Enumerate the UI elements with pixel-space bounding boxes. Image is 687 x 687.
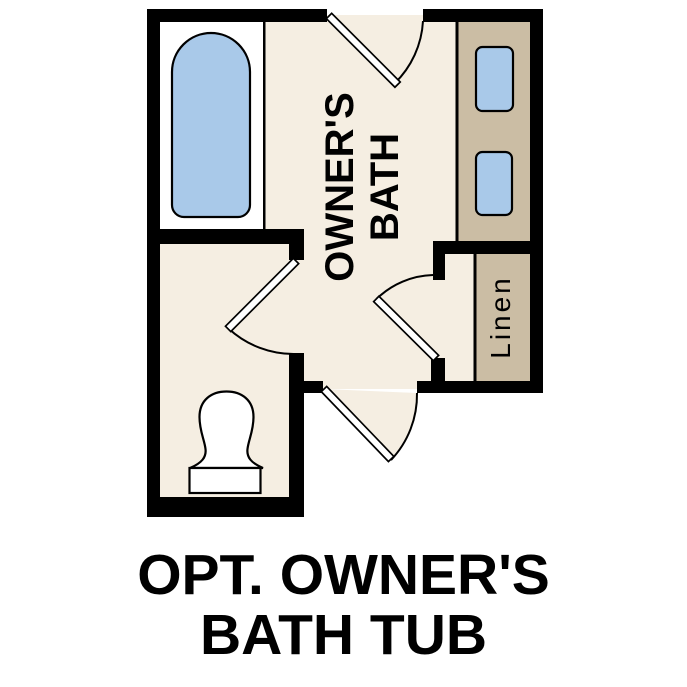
sink-2-icon <box>476 152 512 215</box>
owners-bath-label-line1: OWNER'S <box>318 92 363 282</box>
owners-bath-label: OWNER'S BATH <box>318 92 408 282</box>
plan-caption-line2: BATH TUB <box>0 605 687 665</box>
owners-bath-label-line2: BATH <box>363 92 408 282</box>
wall-alcove-bottom <box>147 229 304 244</box>
wall-top-right <box>423 9 543 22</box>
wall-toilet-bottom <box>147 497 304 517</box>
toilet-tank <box>190 468 261 493</box>
wall-vanity-bottom <box>433 241 543 254</box>
wall-left <box>147 9 160 517</box>
wall-right <box>530 9 543 393</box>
sink-1-icon <box>476 47 513 111</box>
vanity-edge-line <box>456 21 459 242</box>
wall-toilet-right <box>289 353 304 517</box>
linen-label: Linen <box>485 275 517 359</box>
wall-toilet-door-top-jamb <box>289 243 304 260</box>
wall-bottom-door-left-jamb <box>304 381 323 393</box>
linen-edge-line <box>474 253 477 381</box>
wall-linen-bottom <box>417 381 543 393</box>
plan-caption-line1: OPT. OWNER'S <box>0 545 687 605</box>
tub-alcove-edge-line <box>263 21 266 229</box>
floor-plan-figure: OWNER'S BATH Linen OPT. OWNER'S BATH TUB <box>0 0 687 687</box>
wall-hall-door-top-jamb <box>433 254 445 280</box>
wall-top-left <box>147 9 327 22</box>
plan-caption: OPT. OWNER'S BATH TUB <box>0 545 687 665</box>
bathtub-icon <box>172 33 250 217</box>
